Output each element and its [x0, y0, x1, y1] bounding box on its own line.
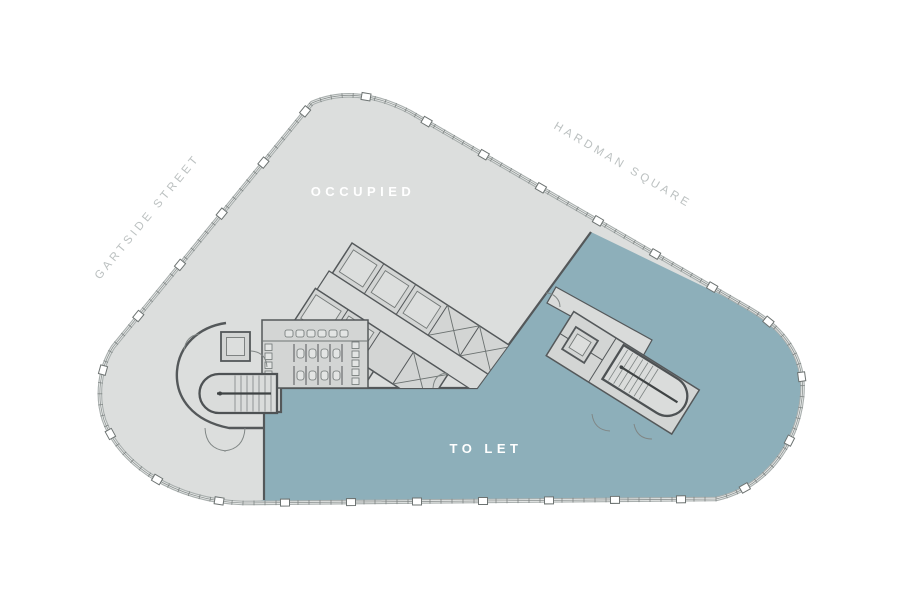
column-marker: [280, 499, 289, 506]
occupied-label: OCCUPIED: [311, 184, 416, 199]
column-marker: [798, 372, 806, 382]
column-marker: [361, 93, 371, 101]
column-marker: [676, 496, 685, 503]
column-marker: [478, 497, 487, 504]
column-marker: [214, 497, 224, 505]
column-marker: [346, 499, 355, 506]
wall-tick: [800, 396, 805, 397]
column-marker: [610, 496, 619, 503]
column-marker: [544, 497, 553, 504]
to-let-label: TO LET: [450, 441, 523, 456]
column-marker: [412, 498, 421, 505]
wall-tick: [98, 405, 103, 406]
hardman-square-label: HARDMAN SQUARE: [552, 120, 694, 210]
fixture-column-right: [352, 342, 359, 385]
floor-plan-svg: OCCUPIED TO LET GARTSIDE STREET HARDMAN …: [0, 0, 900, 600]
floor-plan: OCCUPIED TO LET GARTSIDE STREET HARDMAN …: [0, 0, 900, 600]
